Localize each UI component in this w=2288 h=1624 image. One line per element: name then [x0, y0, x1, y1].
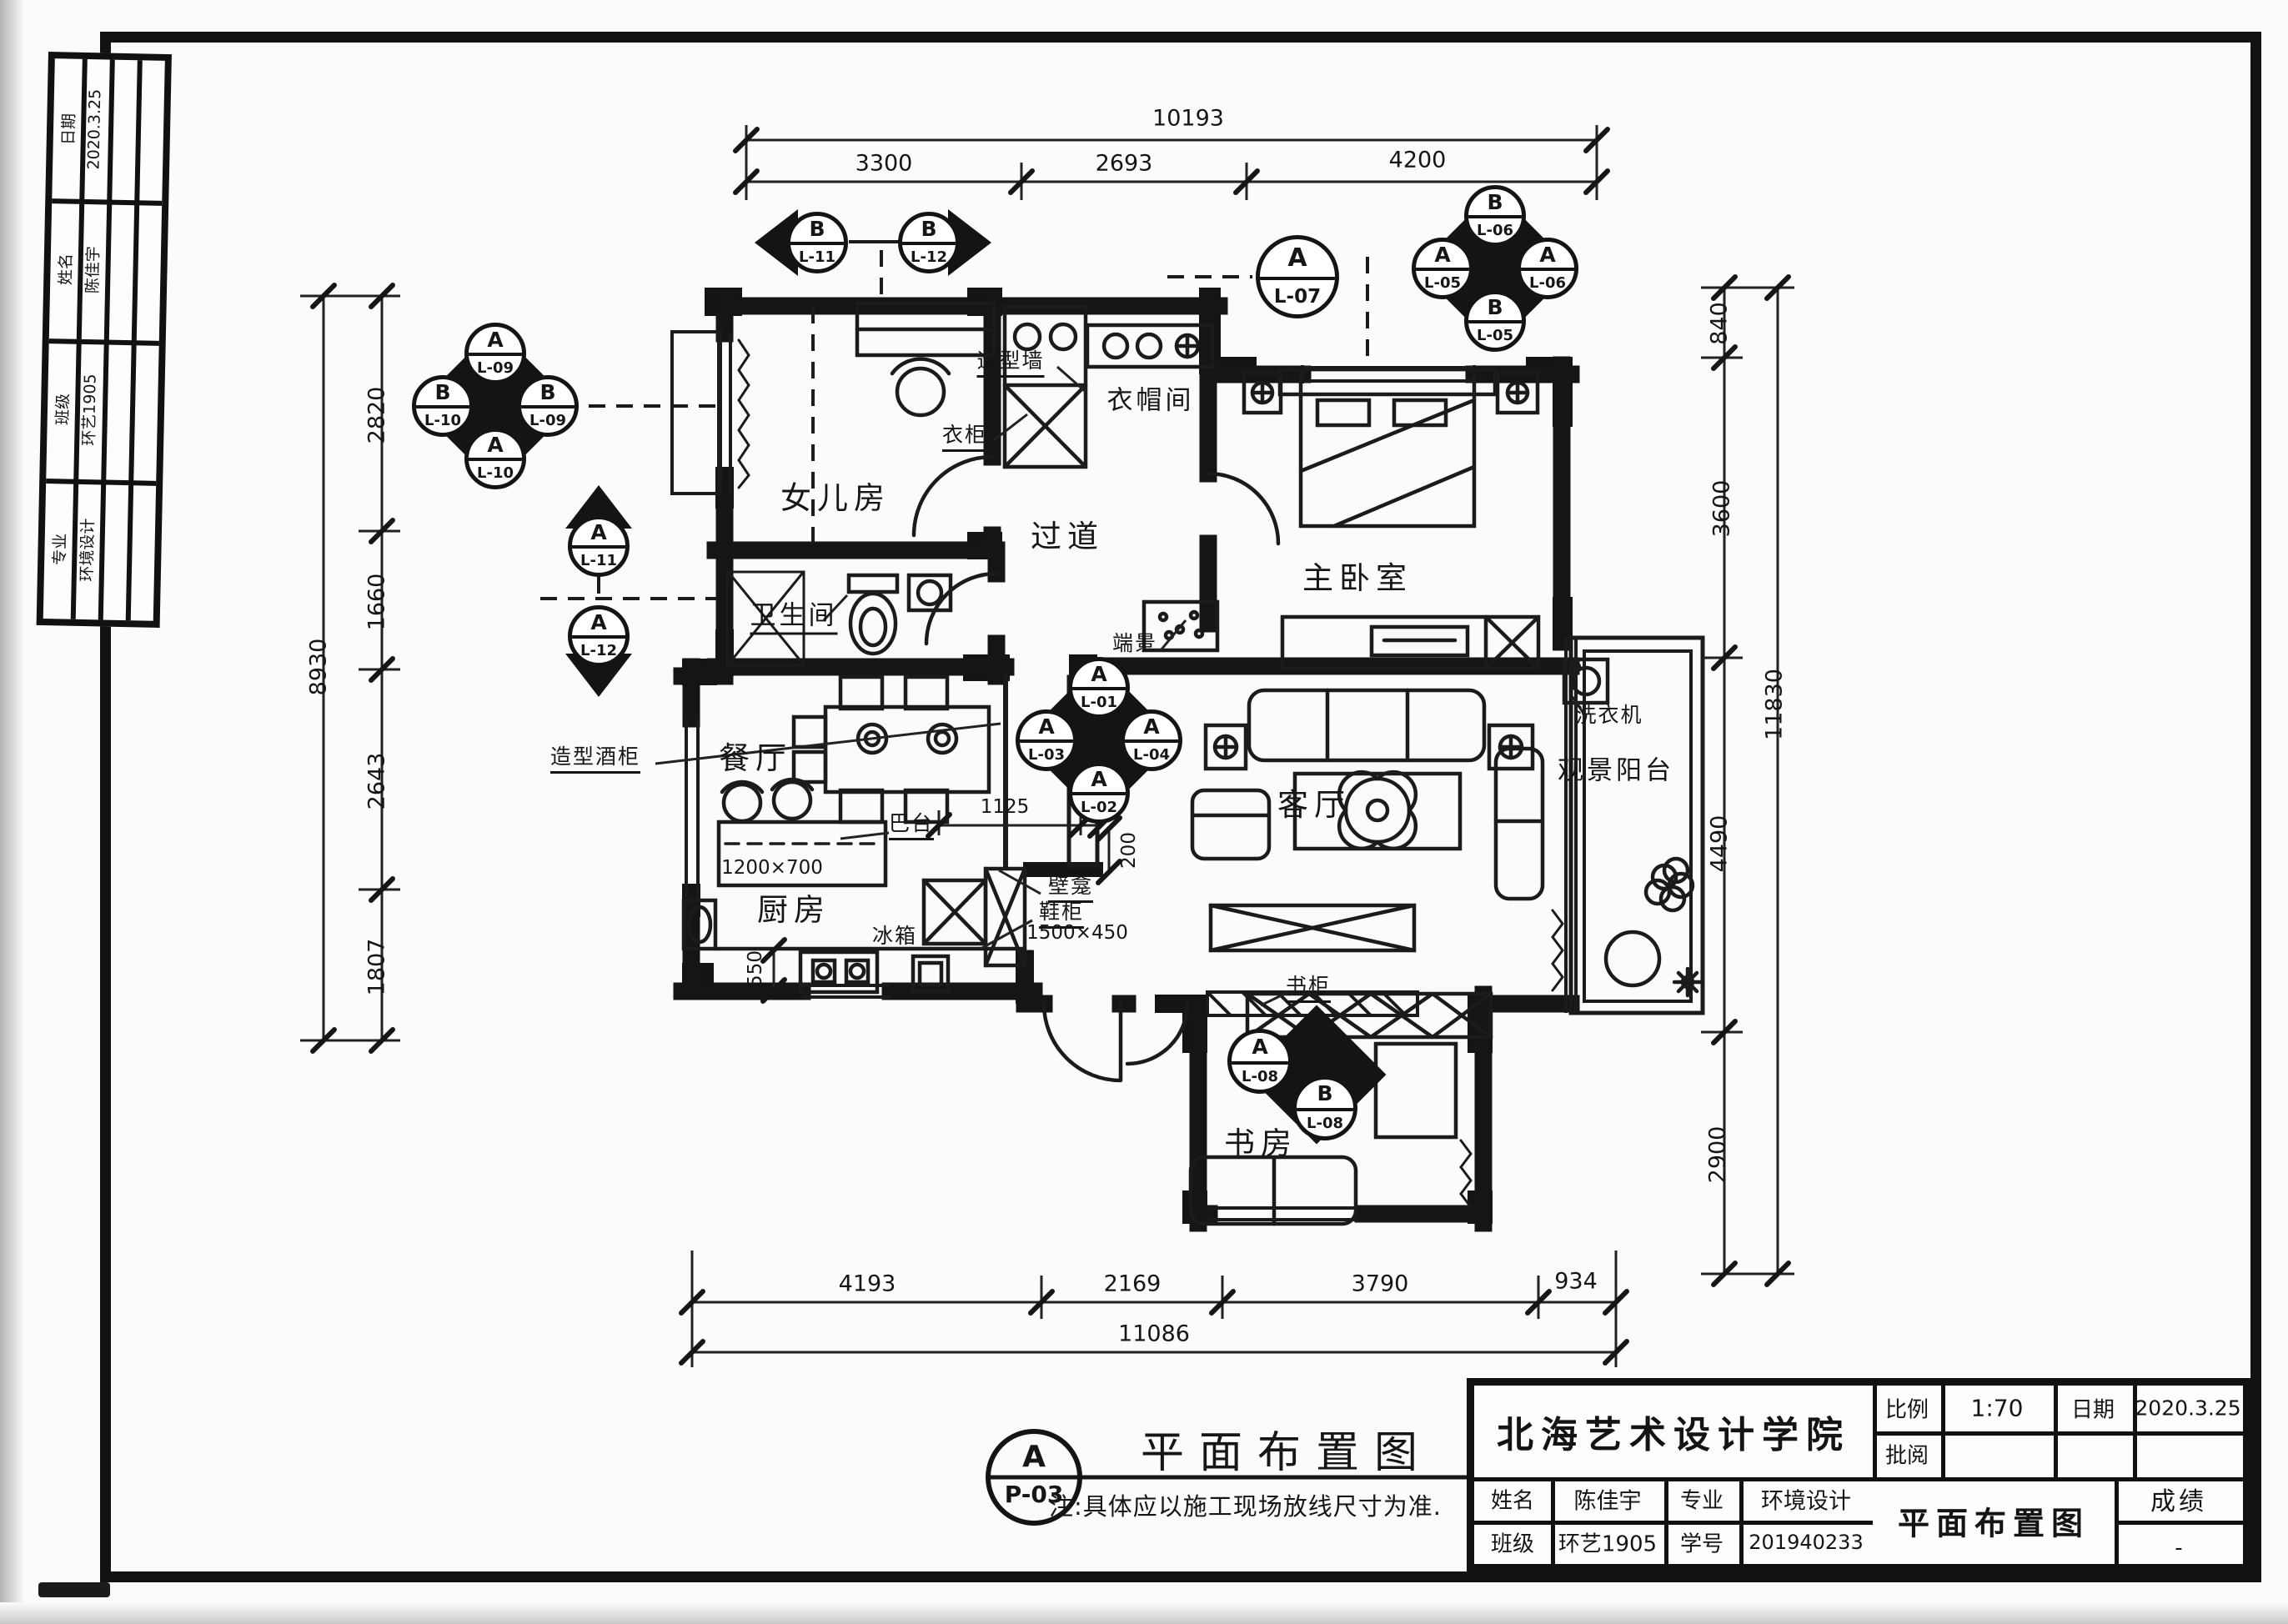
- titleblock-sid-value: 201940233: [1749, 1531, 1863, 1554]
- titleblock-line: [1551, 1477, 1555, 1564]
- dim-right-seg: 3600: [1709, 480, 1735, 538]
- marker-code: L-03: [1020, 743, 1073, 767]
- titleblock-line: [1873, 1431, 2243, 1436]
- marker-circle-b: BL-08: [1292, 1075, 1357, 1140]
- label-fridge: 冰箱: [872, 920, 917, 950]
- marker-code: L-09: [521, 409, 575, 433]
- label-wine-cabinet: 造型酒柜: [550, 740, 640, 774]
- titleblock-line: [1739, 1477, 1744, 1564]
- marker-letter: A: [1072, 661, 1126, 690]
- marker-letter: A: [1521, 242, 1574, 271]
- room-label-corridor: 过道: [1031, 511, 1104, 556]
- marker-code: L-06: [1468, 218, 1522, 243]
- marker-circle: AL-12: [568, 605, 630, 667]
- titleblock-class-value: 环艺1905: [1558, 1527, 1657, 1558]
- marker-circle: BL-11: [786, 212, 848, 273]
- room-label-kitchen: 厨房: [757, 885, 830, 930]
- dim-bottom-seg: 934: [1554, 1269, 1598, 1295]
- room-label-daughter: 女儿房: [780, 473, 891, 518]
- title-block: 北海艺术设计学院 比例 1:70 日期 2020.3.25 批阅 姓名 陈佳宇 …: [1467, 1378, 2250, 1571]
- dim-inner-550: 550: [745, 950, 766, 987]
- marker-circle-north: AL-01: [1068, 657, 1130, 719]
- elevation-marker-center: AL-01 AL-03 AL-04 AL-02: [1016, 657, 1182, 824]
- dim-top-seg: 2693: [1096, 151, 1153, 177]
- marker-code: L-08: [1297, 1111, 1353, 1136]
- marker-code: L-05: [1416, 271, 1469, 295]
- titleblock-school: 北海艺术设计学院: [1497, 1405, 1850, 1458]
- marker-code: L-09: [469, 356, 522, 380]
- label-washer: 洗衣机: [1575, 699, 1643, 729]
- marker-circle-west: AL-05: [1412, 238, 1473, 299]
- marker-code: L-12: [572, 639, 625, 663]
- drawing-annotation-title: 平面布置图: [1141, 1417, 1433, 1480]
- marker-code: L-11: [572, 549, 625, 573]
- marker-code: L-11: [790, 245, 844, 269]
- marker-code: L-01: [1072, 690, 1126, 714]
- marker-letter: A: [1416, 242, 1469, 271]
- room-label-cloak: 衣帽间: [1107, 379, 1195, 417]
- titleblock-grade-value: -: [2175, 1536, 2182, 1561]
- marker-code: L-05: [1468, 323, 1522, 348]
- bubble-letter: A: [991, 1434, 1077, 1476]
- room-label-dining: 餐厅: [719, 733, 792, 778]
- dim-bottom-seg: 4193: [839, 1271, 896, 1297]
- marker-letter: B: [1468, 294, 1522, 323]
- marker-letter: B: [790, 216, 844, 245]
- marker-letter: A: [1072, 766, 1126, 795]
- room-label-balcony: 观景阳台: [1558, 749, 1674, 787]
- marker-letter: B: [902, 216, 956, 245]
- marker-circle: AL-11: [568, 515, 630, 577]
- marker-circle-south: AL-10: [464, 428, 526, 489]
- titleblock-scale-label: 比例: [1885, 1393, 1929, 1424]
- dim-right-seg: 2900: [1705, 1126, 1731, 1184]
- marker-letter: B: [1297, 1080, 1353, 1111]
- marker-circle-north: AL-09: [464, 323, 526, 384]
- titleblock-name-value: 陈佳宇: [1574, 1483, 1642, 1516]
- dim-left-overall: 8930: [306, 639, 332, 696]
- room-label-living: 客厅: [1277, 779, 1351, 825]
- marker-letter: B: [521, 379, 575, 409]
- dim-right-overall: 11830: [1762, 669, 1788, 740]
- titleblock-grade-label: 成绩: [2150, 1481, 2207, 1517]
- titleblock-name-label: 姓名: [1491, 1484, 1534, 1515]
- marker-circle-a: AL-08: [1227, 1029, 1292, 1094]
- drawing-annotation-note: 注:具体应以施工现场放线尺寸为准.: [1049, 1487, 1442, 1522]
- dim-top-seg: 4200: [1389, 148, 1447, 173]
- marker-code: L-02: [1072, 795, 1126, 820]
- marker-letter: A: [572, 609, 625, 639]
- titleblock-sid-label: 学号: [1680, 1527, 1724, 1558]
- marker-circle-east: AL-04: [1121, 709, 1182, 771]
- marker-code: L-10: [416, 409, 469, 433]
- dim-bottom-seg: 2169: [1104, 1271, 1162, 1297]
- titleblock-line: [1474, 1477, 2243, 1481]
- dim-bottom-seg: 3790: [1352, 1271, 1409, 1297]
- marker-letter: B: [1468, 189, 1522, 218]
- dim-right-seg: 4490: [1707, 815, 1733, 873]
- titleblock-major-value: 环境设计: [1761, 1483, 1851, 1516]
- titleblock-drawing-title: 平面布置图: [1898, 1498, 2090, 1544]
- room-label-master: 主卧室: [1302, 553, 1412, 598]
- marker-circle-south: AL-02: [1068, 762, 1130, 824]
- label-bookcase: 书柜: [1286, 970, 1331, 1003]
- titleblock-date-label: 日期: [2071, 1393, 2115, 1424]
- titleblock-line: [1474, 1521, 1873, 1525]
- elevation-marker-west: BL-11: [755, 207, 858, 278]
- dim-left-seg: 2820: [364, 387, 390, 444]
- marker-circle: BL-12: [898, 212, 960, 273]
- titleblock-review-label: 批阅: [1885, 1439, 1929, 1470]
- marker-letter: A: [1232, 1033, 1288, 1065]
- marker-letter: A: [572, 519, 625, 549]
- elevation-marker-down: AL-12: [563, 594, 635, 697]
- marker-code: L-12: [902, 245, 956, 269]
- marker-circle-east: BL-09: [517, 375, 579, 437]
- label-bar: 巴台: [889, 807, 934, 840]
- titleblock-scale-value: 1:70: [1971, 1395, 2024, 1422]
- dim-bottom-overall: 11086: [1118, 1321, 1190, 1347]
- marker-circle-south: BL-05: [1464, 290, 1526, 352]
- marker-circle-west: AL-03: [1016, 709, 1077, 771]
- drawing-sheet: 日期 2020.3.25 姓名 陈佳宇 班级 环艺1905 专业 环境设计: [0, 0, 2288, 1624]
- elevation-marker-study: AL-08 BL-08: [1219, 1007, 1407, 1165]
- marker-letter: A: [469, 432, 522, 461]
- titleblock-major-label: 专业: [1680, 1484, 1724, 1515]
- dim-top-seg: 3300: [855, 151, 913, 177]
- titleblock-line: [2115, 1521, 2243, 1525]
- titleblock-class-label: 班级: [1491, 1527, 1534, 1558]
- marker-circle-north: BL-06: [1464, 185, 1526, 247]
- marker-code: L-04: [1125, 743, 1178, 767]
- marker-code: L-06: [1521, 271, 1574, 295]
- label-end-vista: 端景: [1112, 627, 1157, 660]
- dim-right-seg: 840: [1707, 302, 1733, 345]
- elevation-marker-up: AL-11: [563, 485, 635, 589]
- dim-left-seg: 1807: [364, 939, 390, 996]
- dim-top-overall: 10193: [1152, 106, 1224, 132]
- marker-letter: A: [469, 327, 522, 356]
- marker-code: L-10: [469, 461, 522, 485]
- titleblock-line: [1664, 1477, 1668, 1564]
- dim-inner-200: 200: [1118, 832, 1140, 869]
- room-label-bath: 卫生间: [750, 594, 838, 635]
- elevation-marker-east: BL-12: [888, 207, 991, 278]
- marker-letter: A: [1260, 239, 1335, 280]
- label-feature-wall: 造型墙: [976, 344, 1044, 378]
- marker-circle-west: BL-10: [412, 375, 474, 437]
- marker-circle-east: AL-06: [1517, 238, 1578, 299]
- marker-letter: A: [1020, 714, 1073, 743]
- label-wardrobe: 衣柜: [942, 419, 987, 452]
- elevation-marker-single: A L-07: [1256, 235, 1339, 318]
- label-shoe-size: 1500×450: [1026, 922, 1128, 944]
- elevation-marker-topright: BL-06 AL-05 AL-06 BL-05: [1412, 185, 1578, 352]
- marker-letter: B: [416, 379, 469, 409]
- dim-left-seg: 2643: [364, 753, 390, 810]
- elevation-marker-left: AL-09 BL-10 BL-09 AL-10: [412, 323, 579, 489]
- label-bar-size: 1200×700: [721, 857, 823, 879]
- titleblock-date-value: 2020.3.25: [2135, 1396, 2240, 1421]
- marker-letter: A: [1125, 714, 1178, 743]
- dim-left-seg: 1660: [364, 574, 390, 631]
- marker-code: L-08: [1232, 1065, 1288, 1090]
